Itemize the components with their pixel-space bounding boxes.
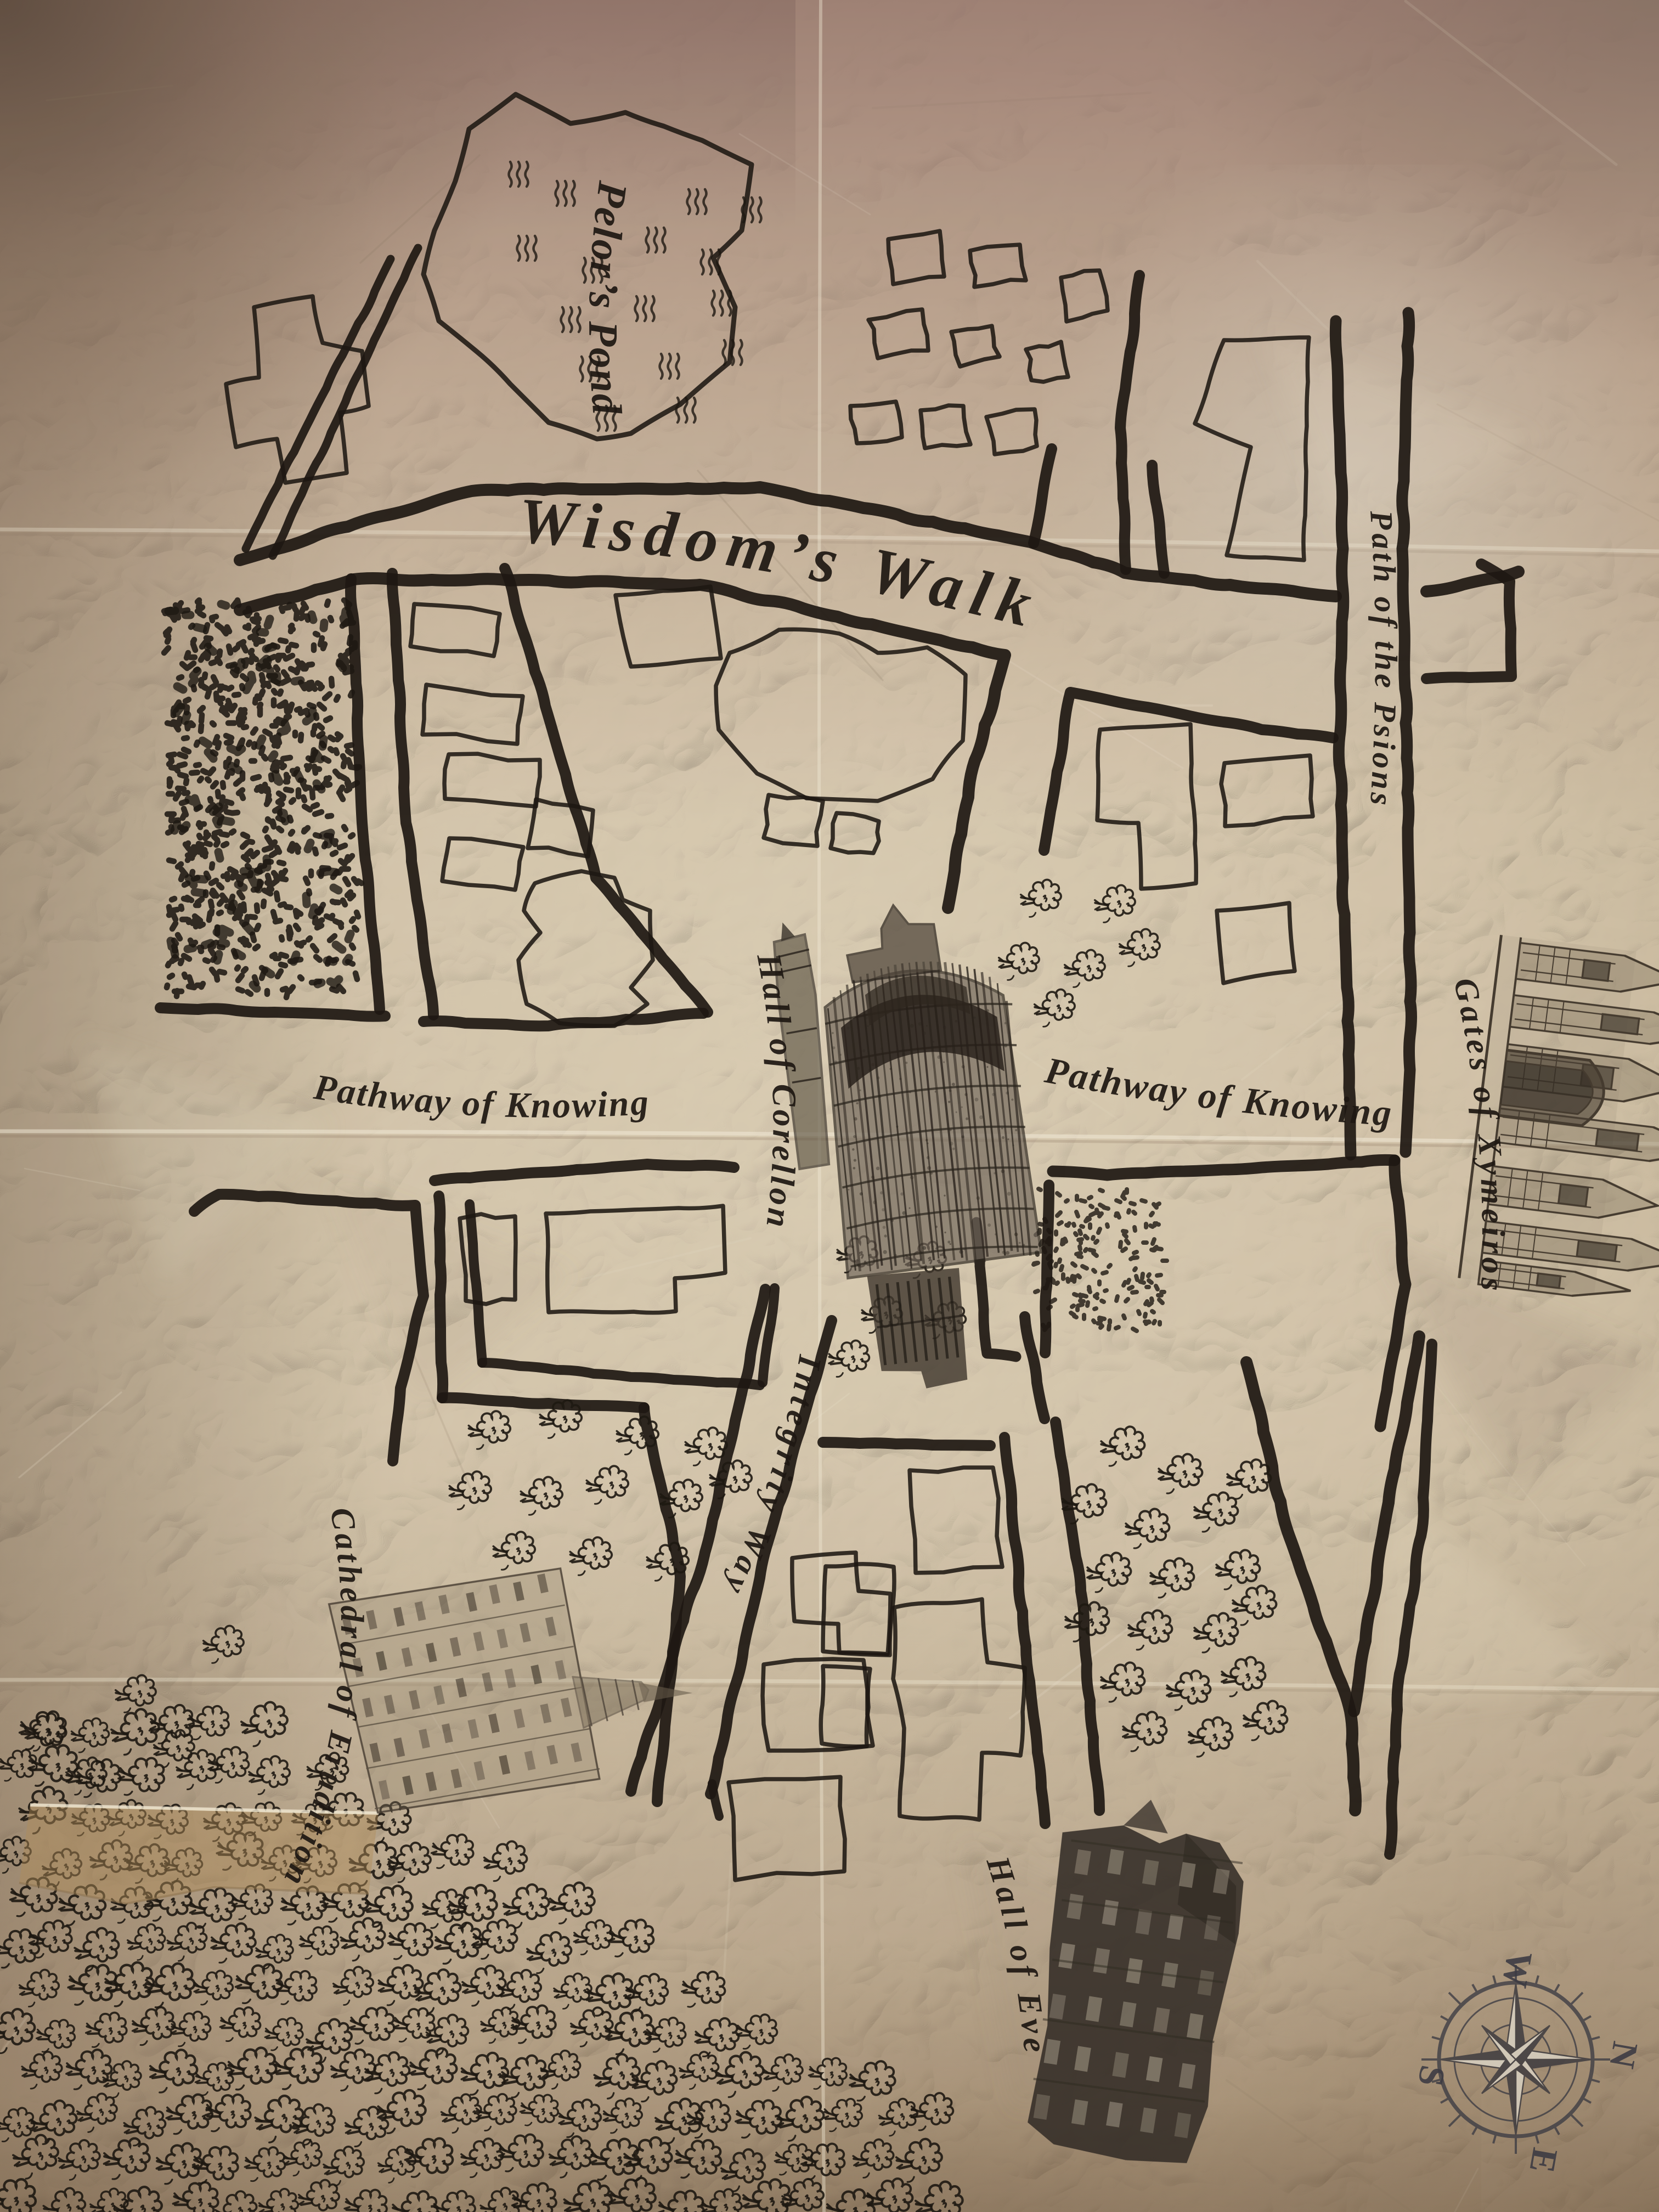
svg-text:Path of the Psions: Path of the Psions <box>1363 509 1404 806</box>
svg-text:W: W <box>1494 1948 1539 1991</box>
